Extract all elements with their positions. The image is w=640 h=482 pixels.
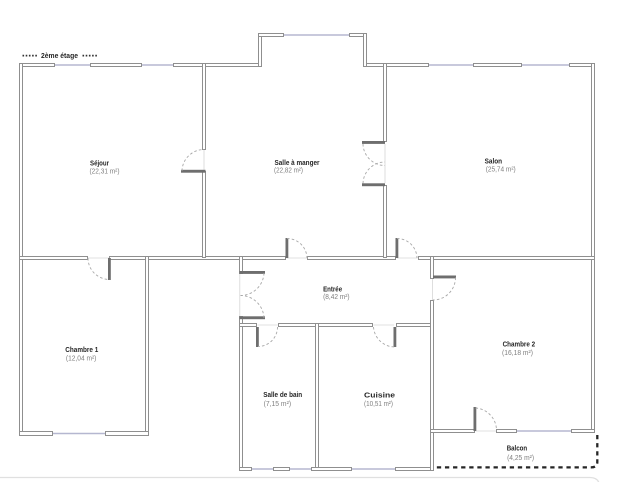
svg-text:(7,15 m²): (7,15 m²) bbox=[264, 401, 292, 408]
svg-text:(8,42 m²): (8,42 m²) bbox=[323, 294, 350, 301]
svg-text:Salle de bain: Salle de bain bbox=[263, 390, 302, 399]
svg-text:(22,31 m²): (22,31 m²) bbox=[90, 168, 120, 175]
svg-text:(25,74 m²): (25,74 m²) bbox=[486, 167, 516, 174]
svg-text:Séjour: Séjour bbox=[90, 158, 109, 167]
svg-text:Balcon: Balcon bbox=[507, 444, 528, 453]
svg-text:Chambre 2: Chambre 2 bbox=[503, 339, 535, 348]
svg-text:Chambre 1: Chambre 1 bbox=[65, 345, 98, 354]
svg-text:(10,51 m²): (10,51 m²) bbox=[364, 401, 393, 408]
svg-text:Cuisine: Cuisine bbox=[364, 391, 395, 400]
svg-text:2ème étage: 2ème étage bbox=[41, 51, 78, 60]
svg-text:(4,25 m²): (4,25 m²) bbox=[507, 455, 534, 462]
svg-text:(12,04 m²): (12,04 m²) bbox=[66, 355, 97, 362]
svg-text:Entrée: Entrée bbox=[323, 284, 342, 293]
svg-text:(16,18 m²): (16,18 m²) bbox=[502, 350, 533, 357]
svg-text:(22,82 m²): (22,82 m²) bbox=[274, 168, 303, 175]
svg-text:Salon: Salon bbox=[485, 157, 503, 166]
svg-text:Salle à manger: Salle à manger bbox=[275, 158, 320, 167]
